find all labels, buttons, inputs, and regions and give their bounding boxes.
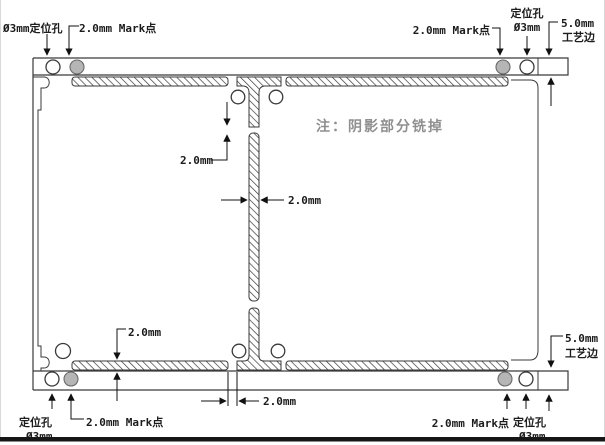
top-left-slot (72, 77, 228, 86)
bottom-center-tee-slot (237, 308, 281, 370)
leader-arrow (551, 336, 563, 367)
dim-arrow (211, 135, 227, 160)
bottom-left-slot (72, 361, 228, 370)
bottom-rail (33, 371, 568, 390)
cad-drawing-canvas: Ø3mm定位孔 2.0mm Mark点 2.0mm Mark点 定位孔 Ø3mm… (0, 0, 605, 445)
dim-slot-width: 2.0mm (288, 194, 321, 207)
page-borders (0, 0, 605, 442)
label-top-left-hole: Ø3mm定位孔 (2, 21, 63, 35)
board-left-outline (33, 77, 49, 371)
fiducial-mark (496, 60, 510, 74)
board-hole (232, 344, 246, 358)
label-top-right-edge-name: 工艺边 (562, 30, 596, 44)
board-right-outline (511, 80, 538, 360)
label-top-right-edge-size: 5.0mm (561, 17, 594, 30)
board-hole (56, 344, 71, 359)
label-bottom-right-edge-size: 5.0mm (565, 332, 598, 345)
holes-and-marks (45, 60, 534, 386)
tooling-hole (520, 60, 534, 74)
board-hole (271, 344, 285, 358)
dim-arrow (117, 329, 126, 359)
fiducial-mark (498, 372, 512, 386)
tooling-hole (519, 372, 533, 386)
tooling-hole (46, 60, 60, 74)
leader-arrow (492, 28, 500, 55)
label-bottom-right-hole-name: 定位孔 (513, 415, 546, 429)
label-bottom-left-hole-name: 定位孔 (19, 415, 52, 429)
bottom-right-slot (286, 361, 508, 370)
label-bottom-right-edge-name: 工艺边 (565, 346, 599, 360)
center-vertical-slot (249, 133, 259, 301)
dim-bottom-slot: 2.0mm (128, 326, 161, 339)
label-top-left-mark: 2.0mm Mark点 (79, 21, 156, 35)
label-bottom-right-mark: 2.0mm Mark点 (432, 416, 509, 430)
label-top-right-hole-name: 定位孔 (511, 6, 544, 20)
label-top-right-mark: 2.0mm Mark点 (413, 23, 490, 37)
dim-top-tab-gap: 2.0mm (180, 154, 213, 167)
bottom-divider-bar (0, 437, 605, 442)
label-bottom-left-mark: 2.0mm Mark点 (86, 415, 163, 429)
dim-bottom-tab-gap: 2.0mm (263, 395, 296, 408)
leader-arrow (549, 22, 558, 55)
panel-frame (33, 58, 568, 390)
milling-note: 注：阴影部分铣掉 (316, 118, 444, 135)
board-hole (269, 90, 283, 104)
leader-arrow (71, 394, 84, 419)
label-top-right-hole-size: Ø3mm (513, 21, 541, 34)
fiducial-mark (70, 60, 84, 74)
fiducial-mark (64, 372, 78, 386)
top-right-slot (286, 77, 508, 86)
panel-drawing: Ø3mm定位孔 2.0mm Mark点 2.0mm Mark点 定位孔 Ø3mm… (0, 0, 605, 445)
top-rail (33, 58, 568, 75)
board-hole (231, 90, 245, 104)
tooling-hole (45, 372, 59, 386)
leader-arrow (69, 26, 79, 55)
